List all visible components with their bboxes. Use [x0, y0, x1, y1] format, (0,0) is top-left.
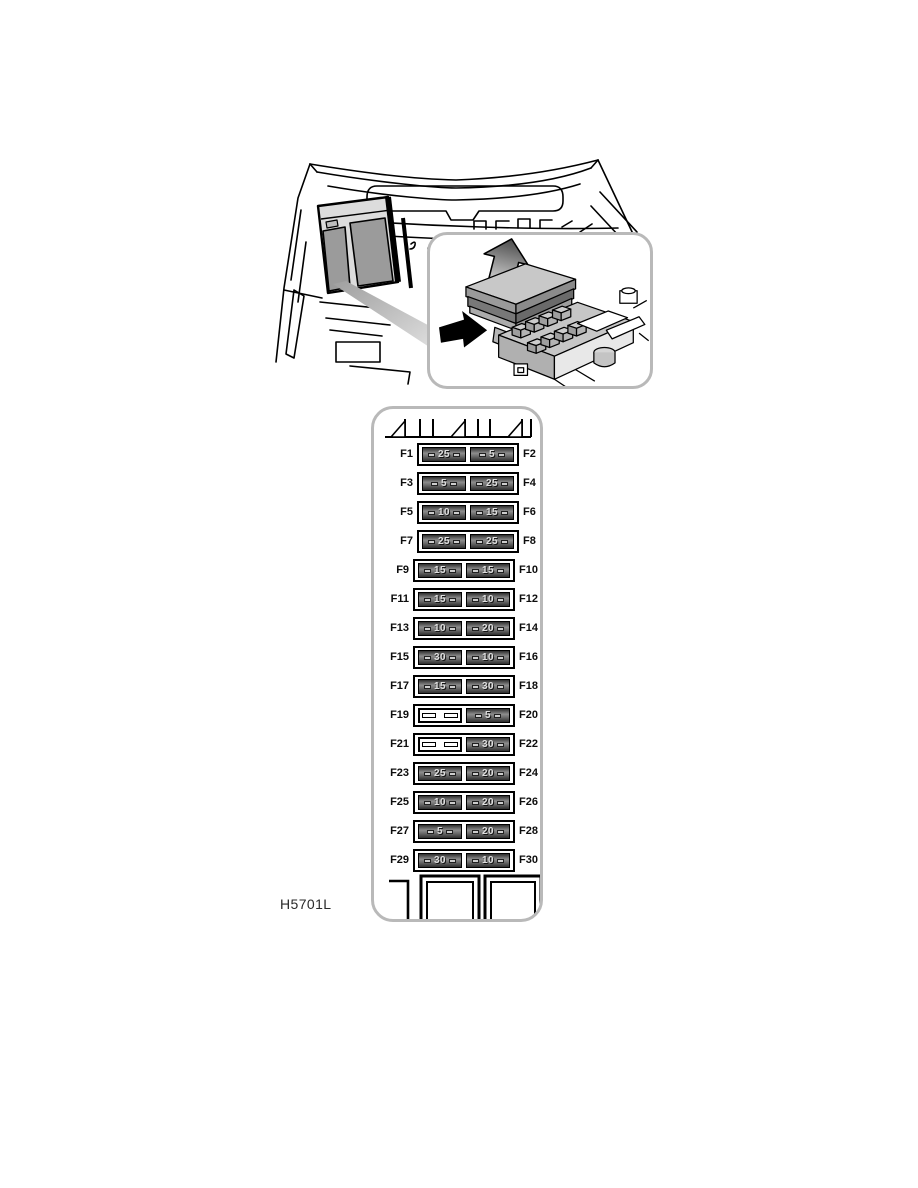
fuse-label-left: F21: [376, 739, 413, 750]
fuse-label-right: F4: [519, 478, 536, 489]
fuse-terminal: [479, 453, 486, 457]
fuse-terminal: [472, 598, 479, 602]
fuse-right: 10: [466, 650, 510, 665]
fuse-label-right: F2: [519, 449, 536, 460]
fuse-row: F11 15 10 F12: [376, 588, 538, 611]
fuse-pair: 25 25: [417, 530, 519, 553]
fuse-amp: 20: [482, 769, 494, 779]
fuse-label-right: F24: [515, 768, 538, 779]
fuse-terminal: [497, 743, 504, 747]
fuse-label-left: F17: [376, 681, 413, 692]
fuse-left: [418, 708, 462, 723]
fuse-terminal: [472, 627, 479, 631]
fuse-terminal: [449, 656, 456, 660]
fuse-pair: 15 15: [413, 559, 515, 582]
fuse-label-right: F12: [515, 594, 538, 605]
fusebox-removal-graphic: [430, 235, 650, 386]
fuse-row: F21 30 F22: [376, 733, 538, 756]
fuse-pair: 30 10: [413, 849, 515, 872]
fuse-terminal: [422, 713, 436, 718]
fuse-terminal: [444, 713, 458, 718]
fuse-label-right: F22: [515, 739, 538, 750]
fuse-terminal: [497, 569, 504, 573]
fuse-label-right: F20: [515, 710, 538, 721]
fuse-amp: 25: [486, 479, 498, 489]
fuse-terminal: [424, 859, 431, 863]
fuse-row: F25 10 20 F26: [376, 791, 538, 814]
fuse-amp: 25: [438, 450, 450, 460]
fuse-amp: 20: [482, 798, 494, 808]
fuse-terminal: [424, 685, 431, 689]
fuse-row: F27 5 20 F28: [376, 820, 538, 843]
fuse-right: 30: [466, 737, 510, 752]
fuse-terminal: [450, 482, 457, 486]
fuse-amp: 5: [441, 479, 447, 489]
fuse-terminal: [449, 801, 456, 805]
fuse-label-right: F16: [515, 652, 538, 663]
fuse-amp: 20: [482, 827, 494, 837]
fuse-pair: 15 30: [413, 675, 515, 698]
fuse-right: 15: [466, 563, 510, 578]
fuse-right: 20: [466, 824, 510, 839]
fuse-rows: F1 25 5 F2 F3 5 25: [376, 443, 538, 872]
fuse-terminal: [424, 627, 431, 631]
fuse-terminal: [472, 830, 479, 834]
fuse-terminal: [501, 482, 508, 486]
fuse-right: 30: [466, 679, 510, 694]
fuse-amp: 15: [434, 682, 446, 692]
fuse-terminal: [497, 859, 504, 863]
fuse-terminal: [476, 482, 483, 486]
fuse-panel: F1 25 5 F2 F3 5 25: [371, 406, 543, 922]
fuse-label-left: F15: [376, 652, 413, 663]
fuse-terminal: [472, 772, 479, 776]
fuse-right: 20: [466, 795, 510, 810]
fuse-label-left: F11: [376, 594, 413, 605]
fuse-label-right: F26: [515, 797, 538, 808]
manual-page: F1 25 5 F2 F3 5 25: [0, 0, 918, 1188]
fuse-terminal: [424, 772, 431, 776]
fuse-terminal: [446, 830, 453, 834]
fuse-terminal: [472, 685, 479, 689]
fuse-label-left: F3: [376, 478, 417, 489]
fuse-pair: 15 10: [413, 588, 515, 611]
fuse-row: F7 25 25 F8: [376, 530, 538, 553]
fuse-pair: 10 20: [413, 617, 515, 640]
fuse-label-left: F29: [376, 855, 413, 866]
fuse-right: 20: [466, 766, 510, 781]
fuse-terminal: [498, 453, 505, 457]
fuse-right: 20: [466, 621, 510, 636]
fuse-terminal: [449, 859, 456, 863]
fuse-terminal: [424, 598, 431, 602]
fuse-left: 5: [418, 824, 462, 839]
fuse-pair: 5 20: [413, 820, 515, 843]
fuse-left: 10: [418, 621, 462, 636]
fuse-left: 15: [418, 563, 462, 578]
fuse-pair: 10 20: [413, 791, 515, 814]
fuse-terminal: [449, 772, 456, 776]
fuse-amp: 10: [434, 798, 446, 808]
fuse-row: F15 30 10 F16: [376, 646, 538, 669]
fuse-label-right: F18: [515, 681, 538, 692]
fuse-amp: 30: [434, 653, 446, 663]
fuse-right: 10: [466, 853, 510, 868]
fuse-label-right: F10: [515, 565, 538, 576]
fuse-terminal: [444, 742, 458, 747]
fuse-label-left: F7: [376, 536, 417, 547]
fuse-row: F3 5 25 F4: [376, 472, 538, 495]
fuse-pair: 5: [413, 704, 515, 727]
fuse-left: 25: [418, 766, 462, 781]
fuse-row: F23 25 20 F24: [376, 762, 538, 785]
fuse-terminal: [476, 540, 483, 544]
fuse-terminal: [453, 511, 460, 515]
fuse-label-left: F5: [376, 507, 417, 518]
fuse-right: 25: [470, 534, 514, 549]
fuse-amp: 25: [486, 537, 498, 547]
fuse-amp: 30: [434, 856, 446, 866]
fuse-terminal: [431, 482, 438, 486]
fuse-row: F19 5 F20: [376, 704, 538, 727]
fuse-terminal: [449, 627, 456, 631]
fuse-amp: 10: [438, 508, 450, 518]
fuse-left: 25: [422, 447, 466, 462]
fuse-terminal: [453, 540, 460, 544]
relay-slots: [377, 873, 541, 922]
fuse-terminal: [475, 714, 482, 718]
fuse-label-left: F27: [376, 826, 413, 837]
fuse-right: 10: [466, 592, 510, 607]
panel-terminal-header: [383, 414, 533, 442]
fuse-amp: 30: [482, 740, 494, 750]
fuse-terminal: [501, 511, 508, 515]
fuse-terminal: [449, 569, 456, 573]
fuse-terminal: [427, 830, 434, 834]
fuse-label-right: F30: [515, 855, 538, 866]
fuse-terminal: [428, 511, 435, 515]
fuse-terminal: [497, 830, 504, 834]
fuse-row: F29 30 10 F30: [376, 849, 538, 872]
fuse-left: 5: [422, 476, 466, 491]
fusebox-removal-inset: [427, 232, 653, 389]
fuse-amp: 5: [437, 827, 443, 837]
fuse-row: F17 15 30 F18: [376, 675, 538, 698]
fuse-label-left: F9: [376, 565, 413, 576]
fuse-label-right: F14: [515, 623, 538, 634]
fuse-terminal: [494, 714, 501, 718]
figure-code: H5701L: [280, 896, 331, 912]
fuse-label-left: F13: [376, 623, 413, 634]
fuse-terminal: [472, 569, 479, 573]
fuse-pair: 5 25: [417, 472, 519, 495]
fuse-amp: 15: [482, 566, 494, 576]
fuse-amp: 30: [482, 682, 494, 692]
fuse-label-left: F19: [376, 710, 413, 721]
fuse-row: F1 25 5 F2: [376, 443, 538, 466]
fuse-left: [418, 737, 462, 752]
fuse-pair: 30 10: [413, 646, 515, 669]
fuse-row: F13 10 20 F14: [376, 617, 538, 640]
fuse-terminal: [497, 656, 504, 660]
fuse-left: 10: [422, 505, 466, 520]
fuse-left: 10: [418, 795, 462, 810]
fuse-terminal: [501, 540, 508, 544]
fuse-left: 25: [422, 534, 466, 549]
fuse-left: 30: [418, 853, 462, 868]
fuse-amp: 15: [486, 508, 498, 518]
fuse-pair: 30: [413, 733, 515, 756]
fuse-terminal: [428, 540, 435, 544]
fuse-left: 15: [418, 592, 462, 607]
fuse-terminal: [497, 801, 504, 805]
fuse-amp: 10: [482, 653, 494, 663]
fuse-terminal: [424, 801, 431, 805]
fuse-terminal: [472, 859, 479, 863]
fuse-row: F5 10 15 F6: [376, 501, 538, 524]
fuse-amp: 15: [434, 595, 446, 605]
fuse-label-left: F1: [376, 449, 417, 460]
fuse-amp: 15: [434, 566, 446, 576]
fuse-label-right: F8: [519, 536, 536, 547]
fuse-terminal: [497, 685, 504, 689]
fuse-amp: 10: [482, 856, 494, 866]
fuse-amp: 5: [489, 450, 495, 460]
fuse-terminal: [449, 598, 456, 602]
fuse-label-left: F25: [376, 797, 413, 808]
fuse-label-left: F23: [376, 768, 413, 779]
fuse-terminal: [424, 656, 431, 660]
fuse-label-right: F28: [515, 826, 538, 837]
fuse-row: F9 15 15 F10: [376, 559, 538, 582]
fuse-left: 30: [418, 650, 462, 665]
fuse-amp: 25: [438, 537, 450, 547]
fuse-terminal: [428, 453, 435, 457]
fuse-right: 5: [466, 708, 510, 723]
fuse-amp: 20: [482, 624, 494, 634]
fuse-terminal: [472, 656, 479, 660]
fuse-terminal: [497, 627, 504, 631]
fuse-amp: 25: [434, 769, 446, 779]
fuse-terminal: [449, 685, 456, 689]
fuse-right: 25: [470, 476, 514, 491]
fuse-terminal: [476, 511, 483, 515]
fuse-terminal: [497, 772, 504, 776]
fuse-terminal: [497, 598, 504, 602]
fuse-pair: 25 5: [417, 443, 519, 466]
fuse-terminal: [472, 743, 479, 747]
fuse-pair: 10 15: [417, 501, 519, 524]
fuse-amp: 10: [434, 624, 446, 634]
fuse-amp: 10: [482, 595, 494, 605]
fuse-terminal: [453, 453, 460, 457]
fuse-terminal: [424, 569, 431, 573]
fuse-terminal: [472, 801, 479, 805]
fuse-pair: 25 20: [413, 762, 515, 785]
fuse-left: 15: [418, 679, 462, 694]
fuse-right: 15: [470, 505, 514, 520]
fuse-amp: 5: [485, 711, 491, 721]
fuse-terminal: [422, 742, 436, 747]
fuse-label-right: F6: [519, 507, 536, 518]
fuse-right: 5: [470, 447, 514, 462]
